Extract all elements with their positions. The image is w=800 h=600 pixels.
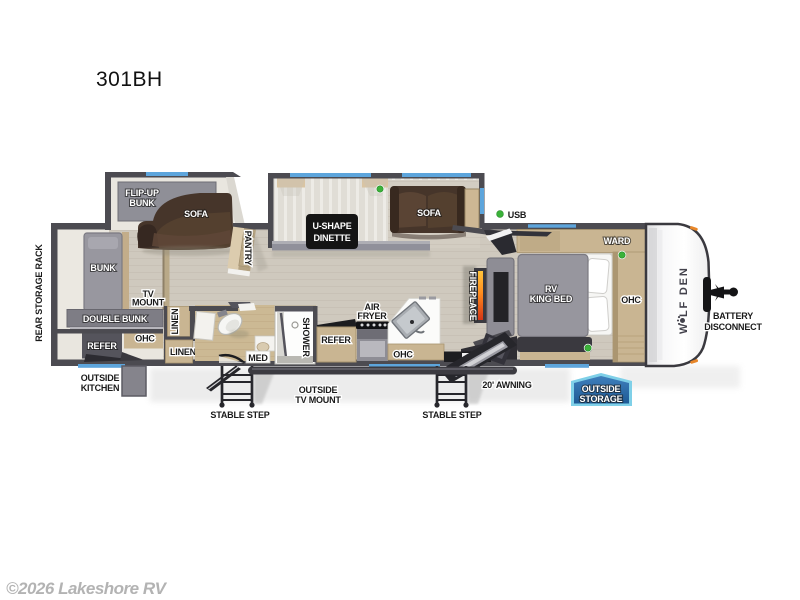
- svg-text:LINEN: LINEN: [170, 347, 196, 357]
- svg-text:U-SHAPE: U-SHAPE: [312, 221, 351, 231]
- svg-text:20' AWNING: 20' AWNING: [482, 380, 532, 390]
- svg-text:REFER: REFER: [321, 335, 351, 345]
- svg-text:TV MOUNT: TV MOUNT: [295, 395, 341, 405]
- svg-text:PANTRY: PANTRY: [243, 231, 253, 266]
- svg-text:SOFA: SOFA: [184, 209, 208, 219]
- svg-text:USB: USB: [508, 210, 527, 220]
- svg-text:BUNK: BUNK: [90, 263, 116, 273]
- svg-text:RV: RV: [545, 284, 557, 294]
- svg-text:SHOWER: SHOWER: [301, 317, 311, 357]
- svg-text:SOFA: SOFA: [417, 208, 441, 218]
- svg-text:OHC: OHC: [135, 334, 155, 344]
- svg-text:OUTSIDE: OUTSIDE: [299, 385, 338, 395]
- svg-text:DOUBLE BUNK: DOUBLE BUNK: [83, 314, 148, 324]
- svg-text:KITCHEN: KITCHEN: [81, 383, 120, 393]
- svg-text:301BH: 301BH: [96, 68, 163, 91]
- svg-text:FIREPLACE: FIREPLACE: [468, 271, 478, 320]
- svg-text:KING BED: KING BED: [530, 294, 573, 304]
- svg-text:MED: MED: [248, 353, 268, 363]
- svg-text:STORAGE: STORAGE: [580, 394, 623, 404]
- svg-text:STABLE STEP: STABLE STEP: [210, 410, 269, 420]
- svg-text:REAR STORAGE RACK: REAR STORAGE RACK: [34, 244, 44, 342]
- svg-text:OUTSIDE: OUTSIDE: [582, 384, 621, 394]
- svg-text:FRYER: FRYER: [357, 311, 387, 321]
- svg-text:DINETTE: DINETTE: [313, 233, 350, 243]
- svg-text:OHC: OHC: [393, 350, 413, 360]
- svg-text:FLIP-UP: FLIP-UP: [125, 188, 159, 198]
- svg-text:MOUNT: MOUNT: [132, 298, 165, 308]
- svg-text:BATTERY: BATTERY: [713, 311, 753, 321]
- svg-text:OHC: OHC: [621, 295, 641, 305]
- svg-text:©2026 Lakeshore RV: ©2026 Lakeshore RV: [6, 579, 168, 598]
- svg-text:DISCONNECT: DISCONNECT: [704, 322, 762, 332]
- svg-text:STABLE STEP: STABLE STEP: [422, 410, 481, 420]
- svg-text:REFER: REFER: [87, 341, 117, 351]
- svg-text:WARD: WARD: [604, 236, 631, 246]
- svg-text:OUTSIDE: OUTSIDE: [81, 373, 120, 383]
- svg-text:BUNK: BUNK: [129, 198, 155, 208]
- svg-text:LINEN: LINEN: [170, 308, 180, 334]
